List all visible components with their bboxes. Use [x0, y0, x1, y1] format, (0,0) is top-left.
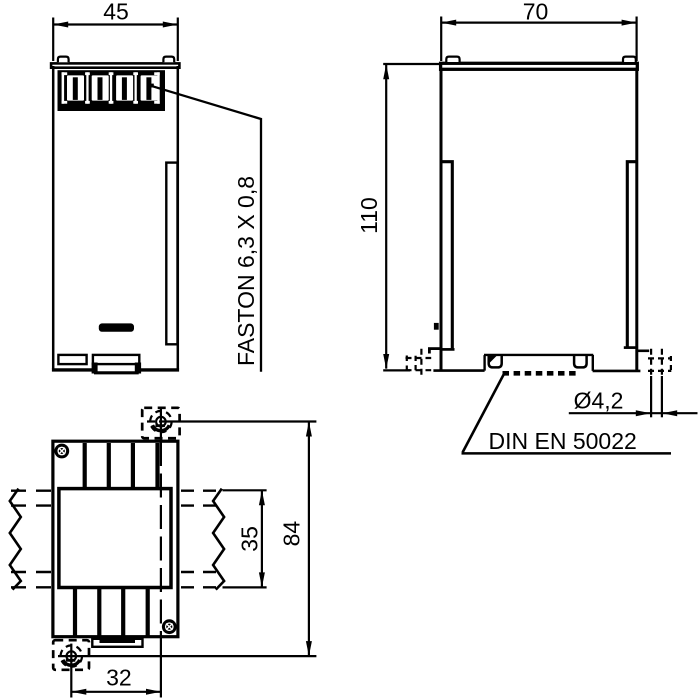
svg-text:45: 45: [103, 0, 129, 24]
svg-text:70: 70: [523, 0, 549, 24]
svg-text:110: 110: [356, 197, 382, 234]
svg-text:FASTON 6,3 X 0,8: FASTON 6,3 X 0,8: [233, 176, 259, 366]
svg-text:35: 35: [237, 526, 263, 552]
svg-text:Ø4,2: Ø4,2: [574, 388, 624, 414]
svg-text:DIN EN 50022: DIN EN 50022: [489, 428, 637, 454]
svg-text:32: 32: [106, 664, 132, 690]
svg-text:84: 84: [279, 521, 305, 547]
